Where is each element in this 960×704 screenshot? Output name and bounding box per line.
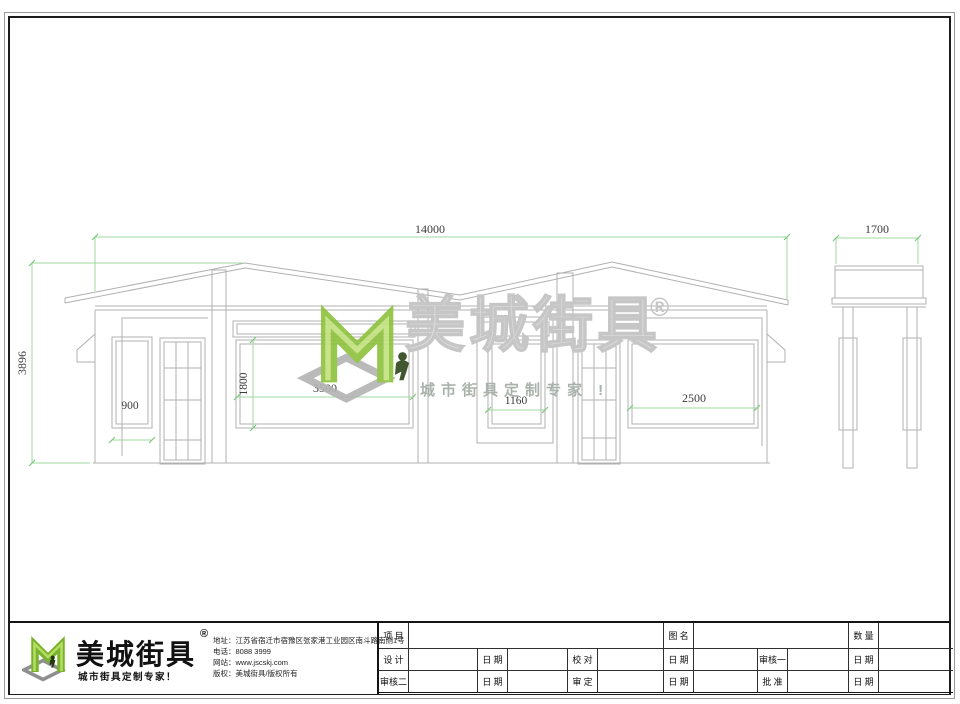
label-date-5: 日 期 <box>664 671 694 693</box>
label-reviewer-2: 审核二 <box>379 671 409 693</box>
door-right <box>578 340 620 464</box>
company-tagline: 城市街具定制专家！ <box>78 669 177 683</box>
side-view <box>832 266 926 468</box>
value-quantity <box>879 623 953 649</box>
dim-overall-height: 3896 <box>15 351 29 375</box>
label-design: 设 计 <box>379 649 409 671</box>
dim-right-window: 2500 <box>682 391 706 405</box>
elevation-drawing: 14000 1700 3896 900 1800 3500 1160 2500 <box>0 0 960 704</box>
company-logo-icon <box>22 629 72 685</box>
label-date-3: 日 期 <box>849 649 879 671</box>
value-reviewer-2 <box>409 671 478 693</box>
contact-phone: 电话：8088 3999 <box>213 646 405 657</box>
value-date-2 <box>694 649 758 671</box>
label-date-4: 日 期 <box>478 671 508 693</box>
label-date-1: 日 期 <box>478 649 508 671</box>
columns <box>212 270 573 463</box>
titleblock-table: 项 目 图 名 数 量 设 计 日 期 校 对 日 期 审核一 日 期 审核二 … <box>377 623 951 694</box>
dim-mid-window-height: 1800 <box>238 372 250 395</box>
drawing-sheet: 14000 1700 3896 900 1800 3500 1160 2500 … <box>0 0 960 704</box>
dim-left-window: 900 <box>121 400 139 412</box>
label-date-2: 日 期 <box>664 649 694 671</box>
door-left <box>160 338 205 464</box>
company-registered-mark: ® <box>200 628 208 640</box>
value-date-6 <box>879 671 953 693</box>
value-approval <box>788 671 849 693</box>
label-project: 项 目 <box>379 623 409 649</box>
window-right <box>628 340 758 428</box>
label-drawing-name: 图 名 <box>664 623 694 649</box>
dim-overall-width: 14000 <box>415 222 445 236</box>
contact-copyright: 版权：美城街具/版权所有 <box>213 668 405 679</box>
value-design <box>409 649 478 671</box>
company-contact: 地址：江苏省宿迁市宿豫区张家港工业园区南斗路南侧1号 电话：8088 3999 … <box>213 635 405 679</box>
value-date-4 <box>508 671 568 693</box>
label-date-6: 日 期 <box>849 671 879 693</box>
label-proofread: 校 对 <box>568 649 598 671</box>
value-date-3 <box>879 649 953 671</box>
dim-mid-window-width: 3500 <box>313 381 337 395</box>
value-drawing-name <box>694 623 849 649</box>
dim-center-window: 1160 <box>505 395 528 407</box>
value-date-1 <box>508 649 568 671</box>
value-approve-review <box>598 671 664 693</box>
company-name: 美城街具 <box>76 633 196 673</box>
title-block: 美城街具 ® 城市街具定制专家！ 地址：江苏省宿迁市宿豫区张家港工业园区南斗路南… <box>10 621 949 694</box>
label-approval: 批 准 <box>758 671 788 693</box>
label-quantity: 数 量 <box>849 623 879 649</box>
value-project <box>409 623 664 649</box>
dim-side-width: 1700 <box>865 222 889 236</box>
window-left <box>112 337 152 428</box>
value-reviewer-1 <box>788 649 849 671</box>
label-reviewer-1: 审核一 <box>758 649 788 671</box>
roof-outline <box>65 262 788 310</box>
contact-address: 地址：江苏省宿迁市宿豫区张家港工业园区南斗路南侧1号 <box>213 635 405 646</box>
value-date-5 <box>694 671 758 693</box>
value-proofread <box>598 649 664 671</box>
window-mid <box>233 321 415 428</box>
label-approve-review: 审 定 <box>568 671 598 693</box>
contact-website: 网站：www.jscskj.com <box>213 657 405 668</box>
window-center <box>477 317 553 443</box>
